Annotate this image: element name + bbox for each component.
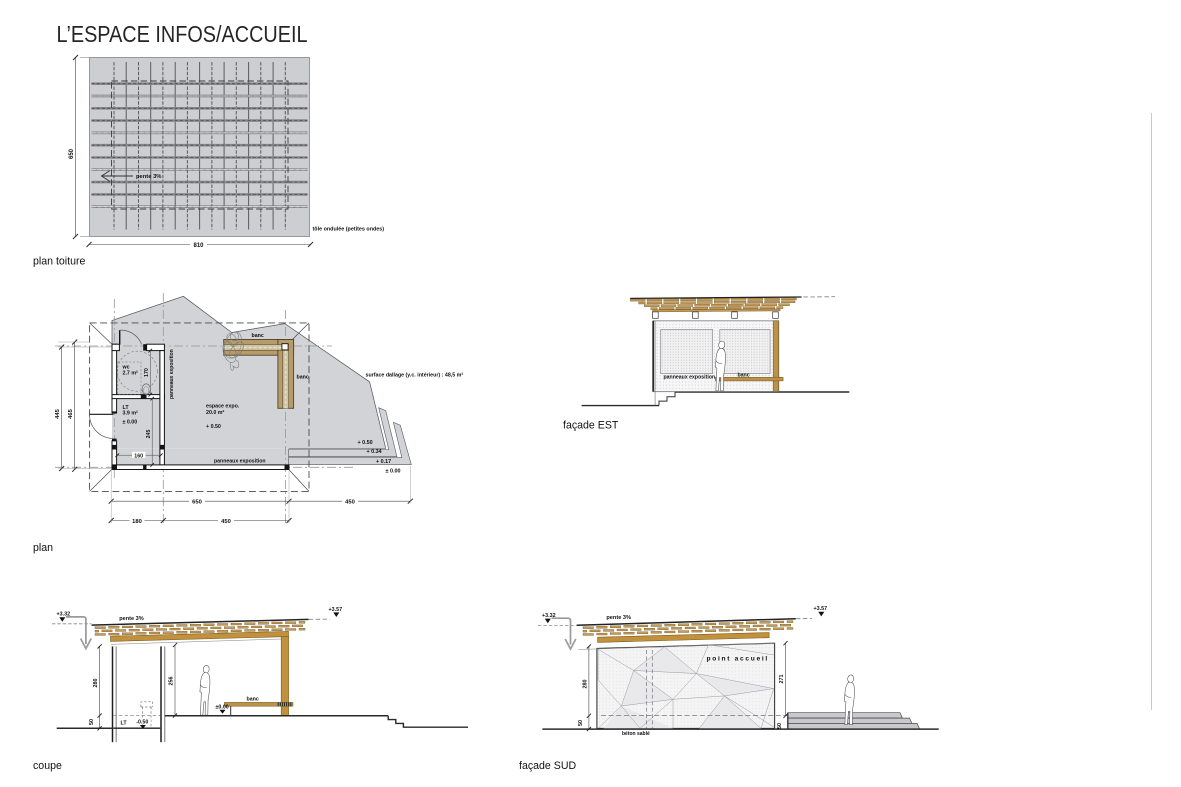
svg-text:650: 650 — [192, 500, 202, 506]
svg-text:panneaux exposition: panneaux exposition — [214, 458, 266, 464]
svg-text:+ 0.50: + 0.50 — [358, 440, 373, 446]
svg-text:3.9 m²: 3.9 m² — [123, 411, 139, 417]
svg-text:280: 280 — [93, 679, 99, 688]
svg-text:450: 450 — [221, 519, 231, 525]
svg-text:plan: plan — [33, 542, 53, 554]
svg-text:± 0.00: ± 0.00 — [123, 420, 138, 426]
svg-text:panneaux exposition: panneaux exposition — [169, 349, 175, 399]
svg-text:445: 445 — [55, 408, 61, 418]
svg-text:LT: LT — [121, 721, 128, 727]
svg-text:pente 3%: pente 3% — [136, 174, 161, 180]
svg-text:±0.00: ±0.00 — [216, 704, 229, 710]
svg-text:810: 810 — [193, 243, 204, 249]
svg-text:pente 3%: pente 3% — [606, 615, 631, 621]
svg-text:280: 280 — [583, 680, 589, 689]
svg-text:+3.57: +3.57 — [814, 606, 828, 612]
svg-text:L’ESPACE INFOS/ACCUEIL: L’ESPACE INFOS/ACCUEIL — [57, 21, 308, 47]
svg-text:650: 650 — [69, 148, 75, 159]
svg-text:2.7 m²: 2.7 m² — [123, 371, 139, 377]
svg-text:façade EST: façade EST — [563, 420, 619, 432]
svg-text:banc: banc — [247, 696, 259, 702]
svg-text:+ 0.50: + 0.50 — [206, 424, 221, 430]
svg-text:50: 50 — [777, 723, 783, 729]
svg-text:espace expo.: espace expo. — [206, 404, 240, 410]
svg-text:plan toiture: plan toiture — [33, 256, 86, 268]
svg-text:256: 256 — [169, 677, 175, 686]
svg-text:-0.50: -0.50 — [136, 719, 148, 725]
svg-text:50: 50 — [89, 719, 95, 725]
svg-text:160: 160 — [134, 453, 143, 459]
svg-text:pente 3%: pente 3% — [119, 616, 144, 622]
svg-text:banc: banc — [738, 372, 750, 378]
svg-text:+3.57: +3.57 — [329, 607, 343, 613]
svg-text:béton sablé: béton sablé — [622, 731, 650, 737]
svg-text:+ 0.34: + 0.34 — [367, 449, 382, 455]
svg-text:point accueil: point accueil — [707, 656, 769, 663]
svg-text:+ 0.17: + 0.17 — [376, 459, 391, 465]
svg-text:banc: banc — [297, 375, 309, 381]
svg-text:surface dallage (y.c. intérieu: surface dallage (y.c. intérieur) : 48,5 … — [366, 373, 464, 379]
svg-text:465: 465 — [68, 408, 74, 418]
svg-text:coupe: coupe — [33, 760, 62, 772]
svg-text:271: 271 — [779, 675, 785, 684]
svg-text:façade SUD: façade SUD — [519, 760, 576, 772]
svg-text:450: 450 — [345, 500, 355, 506]
svg-text:± 0.00: ± 0.00 — [386, 469, 401, 475]
svg-text:180: 180 — [132, 519, 142, 525]
svg-text:50: 50 — [578, 720, 584, 726]
svg-text:245: 245 — [146, 430, 152, 439]
svg-text:20.0 m²: 20.0 m² — [206, 410, 224, 416]
svg-text:panneaux exposition: panneaux exposition — [664, 374, 716, 380]
svg-text:170: 170 — [144, 368, 150, 377]
svg-text:tôle ondulée (petites ondes): tôle ondulée (petites ondes) — [313, 227, 385, 233]
svg-text:banc: banc — [252, 333, 264, 339]
